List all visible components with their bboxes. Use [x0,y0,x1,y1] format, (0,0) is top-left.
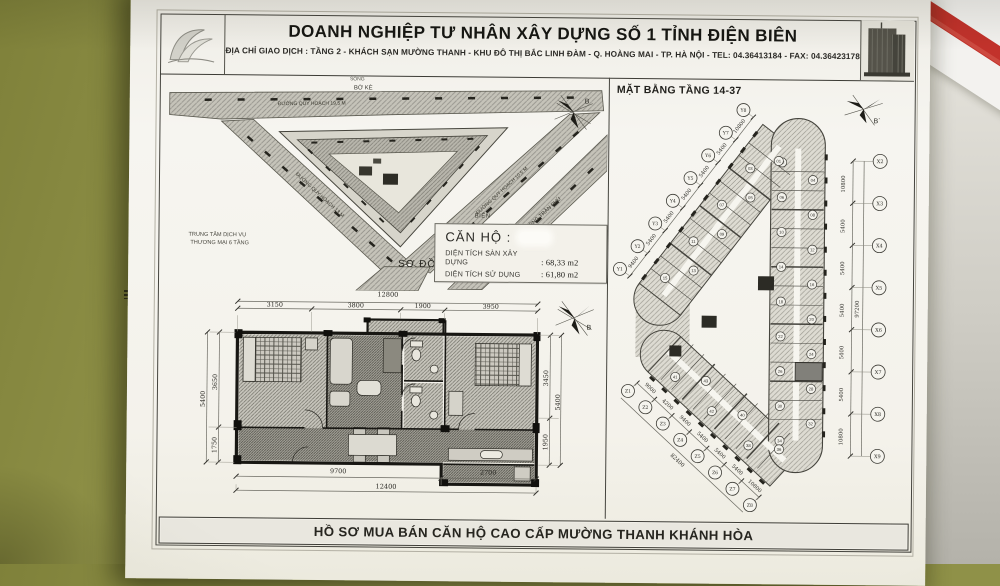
svg-text:5400: 5400 [840,303,846,317]
building-photo-cell [860,20,915,81]
svg-text:13: 13 [691,268,696,273]
floor-area-value: : 68,33 m2 [541,258,578,267]
sofa [330,338,352,384]
svg-text:11: 11 [691,239,696,244]
toilet-1 [412,349,421,361]
x-dimension-chain: 10800540054005400540054001080097200X2X3X… [838,154,887,463]
svg-text:5400: 5400 [698,165,711,179]
svg-text:9400: 9400 [678,415,692,428]
dim-right-2: 1950 [541,434,549,450]
tv-cabinet [383,339,401,373]
tower-floor-plan: 0204060810121416182022242628303234151311… [608,99,908,520]
bed-left-pillows [243,337,255,381]
svg-text:X5: X5 [876,286,883,292]
kitchen-sink [480,451,502,459]
svg-text:Z3: Z3 [660,421,666,427]
svg-text:Z4: Z4 [677,438,683,444]
usable-area-row: DIỆN TÍCH SỬ DỤNG: 61,80 m2 [445,269,606,280]
commercial-center-label-1: TRUNG TÂM DỊCH VỤ [188,231,246,239]
svg-text:5400: 5400 [839,345,845,359]
svg-text:04: 04 [811,178,816,183]
court-block-3 [373,159,381,164]
chair-4 [377,456,389,463]
svg-text:82400: 82400 [669,453,686,469]
embankment-label: BỜ KÈ [354,84,373,91]
river-label: SÔNG [350,75,365,82]
sea-label: BIỂN [475,212,491,219]
highlighted-unit [795,363,822,381]
company-logo-cell [160,13,226,74]
svg-text:5400: 5400 [680,188,693,202]
toilet-2-tank [410,387,422,393]
unit-title: CĂN HỘ : [445,229,606,246]
svg-text:97200: 97200 [855,300,861,318]
svg-text:Y5: Y5 [687,176,694,182]
svg-text:Z5: Z5 [695,454,701,460]
svg-text:X3: X3 [876,201,883,207]
svg-text:42: 42 [709,409,714,414]
svg-text:09: 09 [720,232,725,237]
svg-text:16: 16 [810,282,815,287]
svg-text:5400: 5400 [695,431,709,444]
header-title-cell: DOANH NGHIỆP TƯ NHÂN XÂY DỰNG SỐ 1 TỈNH … [225,14,860,80]
floor-area-label: DIỆN TÍCH SÀN XÂY DỰNG [445,248,541,267]
toilet-1-tank [410,341,422,347]
svg-text:X2: X2 [877,159,884,165]
svg-text:30: 30 [777,404,782,409]
svg-text:X9: X9 [874,454,881,460]
svg-text:10800: 10800 [732,118,747,135]
svg-text:10800: 10800 [838,428,844,446]
svg-text:5400: 5400 [663,210,676,224]
svg-text:12: 12 [810,247,815,252]
dining-table [348,434,396,455]
company-name: DOANH NGHIỆP TƯ NHÂN XÂY DỰNG SỐ 1 TỈNH … [226,21,861,47]
svg-text:03: 03 [748,166,753,171]
unit-info-box: CĂN HỘ : DIỆN TÍCH SÀN XÂY DỰNG: 68,33 m… [434,223,608,284]
svg-text:Z6: Z6 [712,470,718,476]
svg-text:Z2: Z2 [642,405,648,411]
compass-icon-1: B [550,89,596,135]
svg-text:10800: 10800 [841,175,847,193]
svg-text:40: 40 [740,413,745,418]
usable-area-value: : 61,80 m2 [541,270,578,279]
svg-text:Z1: Z1 [625,389,631,395]
dim-bottom-2: 2700 [480,469,496,477]
svg-text:Y8: Y8 [739,108,746,114]
document-header: DOANH NGHIỆP TƯ NHÂN XÂY DỰNG SỐ 1 TỈNH … [160,13,915,81]
svg-text:22: 22 [778,334,783,339]
nightstand [305,338,317,350]
road-junction [356,266,430,291]
floor-plan-title: MẶT BẰNG TẦNG 14-37 [617,84,742,97]
svg-text:32: 32 [808,421,813,426]
svg-text:26: 26 [778,369,783,374]
wings-logo-icon [164,22,220,67]
floor-area-row: DIỆN TÍCH SÀN XÂY DỰNG: 68,33 m2 [445,248,606,268]
svg-text:05: 05 [748,195,753,200]
sink-1 [430,365,438,373]
whited-out-unit-number [519,232,549,243]
compass-label: B [585,99,590,106]
armchair [330,391,350,406]
svg-text:38: 38 [746,443,751,448]
svg-text:28: 28 [809,386,814,391]
svg-text:Y4: Y4 [669,198,676,204]
apartment-floor-plan: 12800 3150 3800 1900 3950 3650 1750 5400… [196,287,570,513]
svg-text:01: 01 [776,159,781,164]
svg-text:5400: 5400 [840,261,846,275]
svg-text:08: 08 [810,213,815,218]
dim-bottom-total: 12400 [376,483,397,491]
svg-text:5400: 5400 [730,463,744,476]
bathroom-1-floor [404,336,443,381]
dim-top-total: 12800 [377,291,398,299]
road-right-label: ĐƯỜNG QUY HOẠCH 10,5 M [474,165,529,216]
road-top-label: ĐƯỜNG QUY HOẠCH 19,5 M [278,100,346,108]
bathroom-2-floor [404,383,443,429]
svg-text:Y1: Y1 [616,266,623,272]
svg-text:06: 06 [779,195,784,200]
dim-left-total: 5400 [199,391,207,407]
svg-text:Y2: Y2 [634,244,641,250]
svg-text:5400: 5400 [716,142,729,156]
usable-area-label: DIỆN TÍCH SỬ DỤNG [445,269,541,279]
svg-text:5400: 5400 [645,233,658,247]
unit-title-text: CĂN HỘ : [445,229,511,245]
chair-3 [353,455,365,462]
dim-bottom-1: 9700 [330,467,346,475]
dim-right-1: 3450 [542,370,550,386]
svg-text:07: 07 [720,202,725,207]
svg-text:Y3: Y3 [651,221,658,227]
svg-text:X6: X6 [875,328,882,334]
building-icon [861,22,914,78]
svg-text:10: 10 [779,230,784,235]
svg-text:5400: 5400 [839,387,845,401]
svg-text:20: 20 [809,317,814,322]
toilet-2 [411,395,420,407]
sink-2 [430,411,438,419]
svg-text:18: 18 [778,299,783,304]
road-top [170,87,604,123]
svg-text:X8: X8 [874,412,881,418]
svg-text:9400: 9400 [628,256,641,270]
svg-text:Z8: Z8 [747,503,753,509]
court-block-2 [383,174,398,185]
compass-label: B [587,325,592,332]
coffee-table [357,380,381,395]
svg-text:9000: 9000 [643,382,657,395]
dim-left-2: 1750 [210,437,218,453]
footer-title: HỒ SƠ MUA BÁN CĂN HỘ CAO CẤP MƯỜNG THANH… [314,524,754,543]
dim-left-1: 3650 [211,374,219,390]
commercial-center-label-2: THƯƠNG MẠI 6 TẦNG [190,239,249,247]
svg-text:41: 41 [673,374,678,379]
svg-text:14: 14 [779,264,784,269]
company-address: ĐỊA CHỈ GIAO DỊCH : TẦNG 2 - KHÁCH SẠN M… [225,46,859,61]
svg-text:X4: X4 [876,243,883,249]
document-sheet: DOANH NGHIỆP TƯ NHÂN XÂY DỰNG SỐ 1 TỈNH … [125,0,931,586]
svg-text:36: 36 [777,447,782,452]
svg-text:Y6: Y6 [704,153,711,159]
svg-text:24: 24 [809,352,814,357]
svg-text:X7: X7 [875,370,882,376]
svg-text:5400: 5400 [840,219,846,233]
svg-text:5400: 5400 [713,447,727,460]
svg-text:43: 43 [703,378,708,383]
svg-text:15: 15 [663,275,668,280]
svg-text:Z7: Z7 [729,486,735,492]
svg-text:4200: 4200 [660,398,674,411]
wardrobe [449,391,463,415]
court-block-1 [359,166,372,175]
svg-text:Y7: Y7 [722,130,729,136]
svg-text:34: 34 [777,438,782,443]
bed-right-pillows [519,344,531,386]
